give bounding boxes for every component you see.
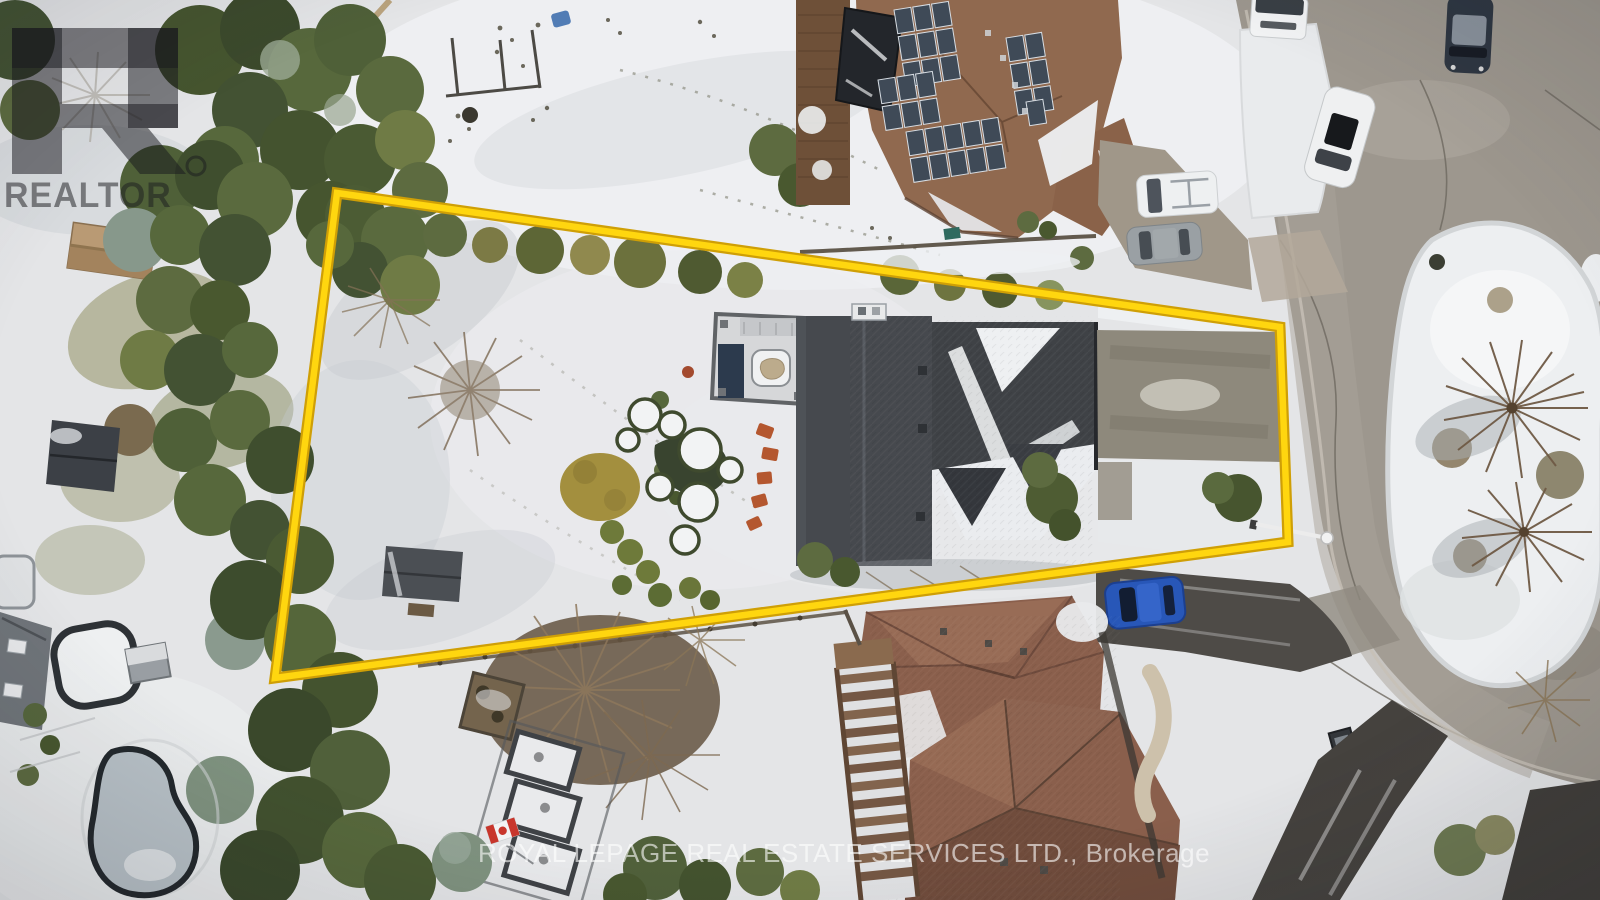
photo-canvas bbox=[0, 0, 1600, 900]
vignette bbox=[0, 0, 1600, 900]
watermark-brokerage-text: ROYAL LEPAGE REAL ESTATE SERVICES LTD., … bbox=[478, 838, 1210, 869]
aerial-photo: REALTOR ROYAL LEPAGE REAL ESTATE SERVICE… bbox=[0, 0, 1600, 900]
